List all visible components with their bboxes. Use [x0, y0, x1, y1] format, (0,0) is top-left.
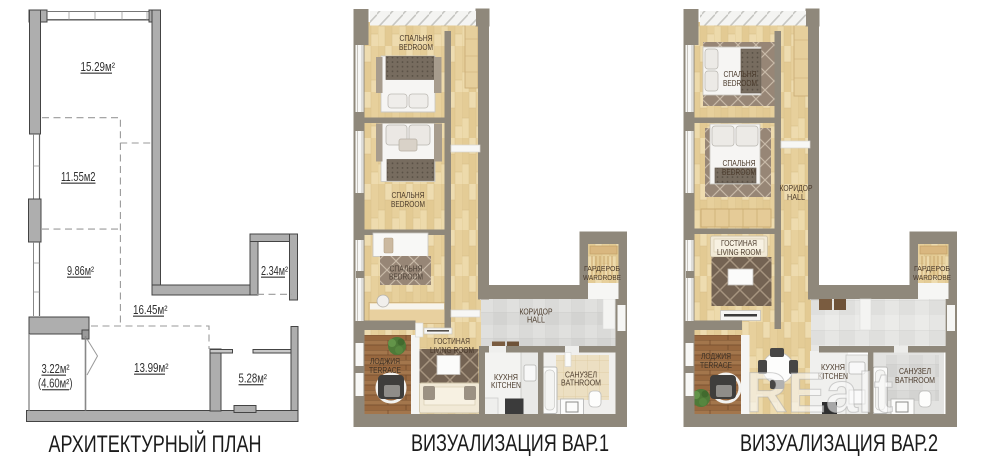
svg-text:REalt: REalt [746, 361, 893, 425]
svg-text:BEDROOM: BEDROOM [399, 43, 433, 52]
svg-text:ГАРДЕРОБ: ГАРДЕРОБ [914, 264, 950, 273]
svg-text:BATHROOM: BATHROOM [561, 379, 601, 388]
svg-text:BEDROOM: BEDROOM [389, 273, 423, 282]
svg-text:TERRACE: TERRACE [369, 366, 401, 375]
svg-text:СПАЛЬНЯ: СПАЛЬНЯ [723, 159, 756, 168]
svg-text:13.99м²: 13.99м² [134, 360, 169, 375]
svg-text:ЛОДЖИЯ: ЛОДЖИЯ [370, 357, 400, 366]
svg-text:КОРИДОР: КОРИДОР [780, 184, 813, 193]
svg-text:ЛОДЖИЯ: ЛОДЖИЯ [701, 352, 731, 361]
svg-text:СПАЛЬНЯ: СПАЛЬНЯ [400, 34, 433, 43]
svg-text:KITCHEN: KITCHEN [491, 381, 521, 390]
svg-text:3.22м²: 3.22м² [42, 361, 70, 376]
svg-text:TERRACE: TERRACE [700, 361, 732, 370]
svg-text:BEDROOM: BEDROOM [722, 168, 756, 177]
svg-text:LIVING ROOM: LIVING ROOM [430, 346, 474, 355]
svg-text:ГОСТИНАЯ: ГОСТИНАЯ [721, 239, 757, 248]
svg-text:HALL: HALL [787, 193, 805, 202]
svg-text:BEDROOM: BEDROOM [391, 200, 425, 209]
svg-text:АРХИТЕКТУРНЫЙ ПЛАН: АРХИТЕКТУРНЫЙ ПЛАН [49, 430, 262, 458]
svg-text:9.86м²: 9.86м² [67, 263, 94, 278]
svg-text:HALL: HALL [527, 316, 545, 325]
svg-text:WARDROBE: WARDROBE [913, 273, 951, 282]
svg-text:BEDROOM: BEDROOM [723, 79, 757, 88]
svg-text:WARDROBE: WARDROBE [583, 273, 621, 282]
svg-text:15.29м²: 15.29м² [81, 59, 116, 74]
svg-text:16.45м²: 16.45м² [133, 302, 168, 317]
svg-text:ГОСТИНАЯ: ГОСТИНАЯ [434, 337, 470, 346]
svg-text:ГАРДЕРОБ: ГАРДЕРОБ [584, 264, 620, 273]
svg-text:ВИЗУАЛИЗАЦИЯ ВАР.2: ВИЗУАЛИЗАЦИЯ ВАР.2 [740, 430, 938, 457]
svg-text:11.55м2: 11.55м2 [61, 169, 96, 184]
svg-text:BATHROOM: BATHROOM [895, 376, 935, 385]
svg-text:5.28м²: 5.28м² [239, 371, 268, 386]
svg-text:ВИЗУАЛИЗАЦИЯ ВАР.1: ВИЗУАЛИЗАЦИЯ ВАР.1 [411, 430, 609, 457]
svg-text:2.34м²: 2.34м² [261, 263, 288, 278]
svg-text:САНУЗЕЛ: САНУЗЕЛ [899, 367, 931, 376]
svg-text:СПАЛЬНЯ: СПАЛЬНЯ [392, 191, 425, 200]
svg-text:LIVING ROOM: LIVING ROOM [717, 248, 761, 257]
svg-text:(4.60м²): (4.60м²) [38, 376, 73, 391]
svg-text:СПАЛЬНЯ: СПАЛЬНЯ [724, 70, 757, 79]
